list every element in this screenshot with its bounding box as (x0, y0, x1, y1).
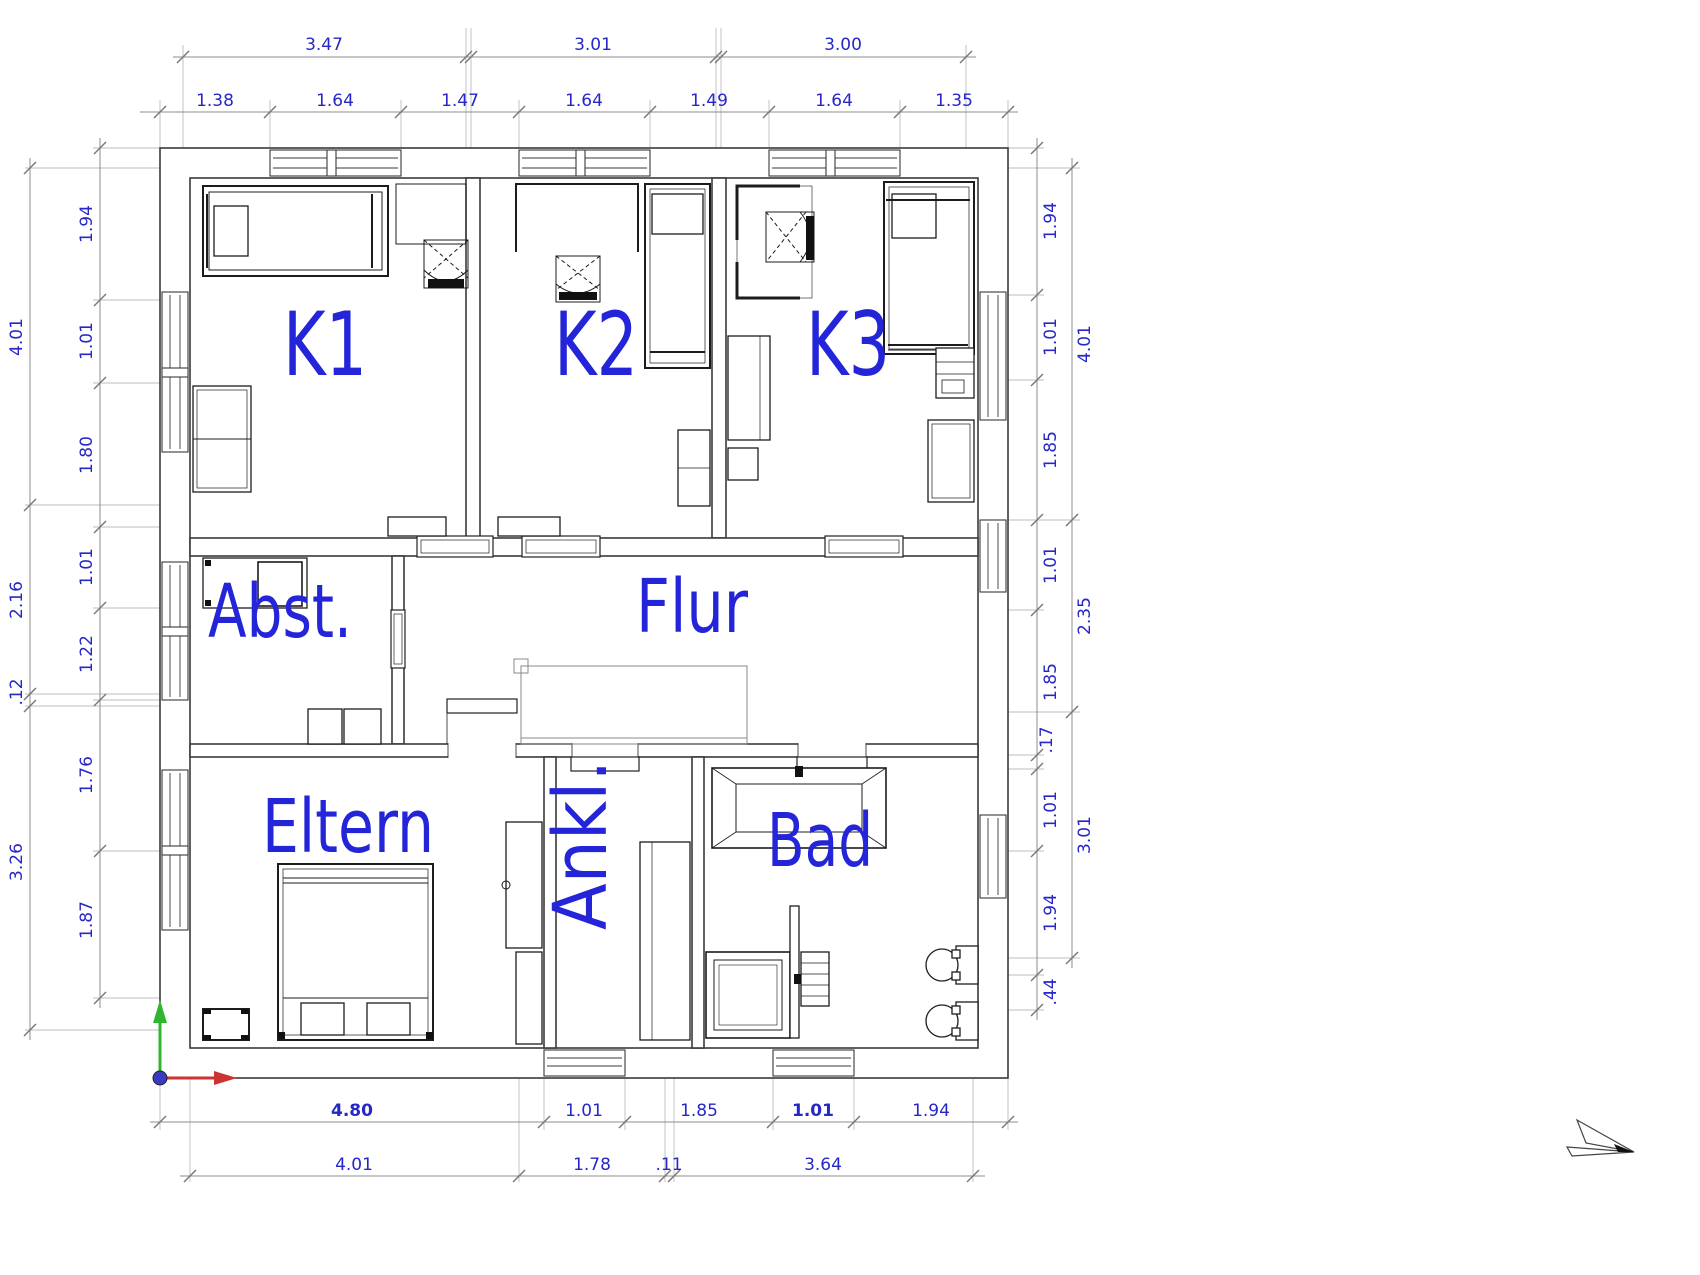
dim-label: .12 (7, 678, 27, 705)
dim-label: 1.01 (77, 322, 97, 360)
door-k3 (825, 536, 903, 557)
dim-label: 1.64 (316, 91, 354, 111)
dim-label: 1.94 (912, 1101, 950, 1121)
dim-label: 3.01 (574, 35, 612, 55)
dim-label: 1.87 (77, 901, 97, 939)
dim-label: 1.64 (815, 91, 853, 111)
room-label-k1: K1 (283, 293, 367, 396)
window-k2-north (519, 150, 650, 176)
room-label-abst: Abst. (208, 569, 352, 655)
k2-bed (645, 184, 710, 368)
wall-k2-k3 (712, 178, 726, 538)
dim-label: 1.01 (792, 1101, 834, 1121)
dim-label: 1.35 (935, 91, 973, 111)
k3-wardrobe (928, 420, 974, 502)
north-arrow-icon (1567, 1120, 1634, 1156)
window-eltern-west (162, 770, 188, 930)
wall-k1-k2 (466, 178, 480, 538)
k3-cabinet (728, 336, 770, 440)
ankl-wardrobe (640, 842, 690, 1040)
window-abst-west (162, 562, 188, 700)
window-bad-east (980, 815, 1006, 898)
dim-label: 1.85 (1041, 431, 1061, 469)
window-k3-north (769, 150, 900, 176)
dim-label: 1.38 (196, 91, 234, 111)
k1-shelf (388, 517, 446, 536)
dim-label: 2.16 (7, 581, 27, 619)
eltern-cabinet (516, 952, 542, 1044)
k1-wardrobe (193, 386, 251, 492)
dim-label: 3.64 (804, 1155, 842, 1175)
dim-label: 1.01 (1041, 791, 1061, 829)
k2-shelf (498, 517, 560, 536)
eltern-wardrobe (502, 822, 542, 948)
dim-label: 2.35 (1075, 597, 1095, 635)
dim-label: 4.01 (7, 318, 27, 356)
dim-label: 1.01 (1041, 546, 1061, 584)
bad-shower (706, 952, 790, 1038)
dim-label: 4.01 (1075, 325, 1095, 363)
door-abst (391, 610, 405, 668)
dim-label: 1.80 (77, 436, 97, 474)
dim-label: 1.47 (441, 91, 479, 111)
room-label-flur: Flur (636, 564, 748, 650)
window-k1-north (270, 150, 401, 176)
k1-bed (203, 186, 388, 276)
k2-desk (516, 184, 638, 252)
dim-label: .11 (655, 1155, 682, 1175)
dim-label: 1.01 (565, 1101, 603, 1121)
door-bad (797, 743, 867, 771)
dim-label: 4.01 (335, 1155, 373, 1175)
dim-label: 4.80 (331, 1101, 373, 1121)
dim-label: .44 (1041, 978, 1061, 1005)
bad-divider-wall (790, 906, 799, 1038)
bathtub-tap-icon (795, 766, 803, 777)
dim-label: 1.49 (690, 91, 728, 111)
floor-plan-canvas: 3.47 3.01 3.00 1.38 1.64 1.47 1.64 1.49 … (0, 0, 1700, 1275)
dim-label: 1.22 (77, 635, 97, 673)
window-flur-east (980, 520, 1006, 592)
window-bad-south (773, 1050, 854, 1076)
dim-label: 1.94 (77, 205, 97, 243)
dim-label: 1.94 (1041, 894, 1061, 932)
dim-label: .17 (1037, 726, 1057, 753)
dim-label: 1.76 (77, 756, 97, 794)
door-k1 (417, 536, 493, 557)
dim-label: 1.85 (1041, 663, 1061, 701)
room-label-k3: K3 (806, 293, 890, 396)
k3-bed (884, 182, 974, 354)
k2-cabinet (678, 430, 710, 506)
door-k2 (522, 536, 600, 557)
abst-boxes (308, 709, 381, 744)
k3-nightstand (936, 348, 974, 398)
room-label-k2: K2 (554, 293, 638, 396)
window-ankl-south (544, 1050, 625, 1076)
bad-sink-1 (926, 946, 978, 984)
wall-ankl-bad (692, 757, 704, 1048)
bad-sink-2 (926, 1002, 978, 1040)
window-k1-west (162, 292, 188, 452)
dim-label: 1.64 (565, 91, 603, 111)
room-label-bad: Bad (767, 798, 873, 884)
dim-label: 1.01 (1041, 318, 1061, 356)
dim-label: 1.94 (1041, 202, 1061, 240)
room-label-eltern: Eltern (262, 784, 434, 870)
room-label-ankl: Ankl. (538, 760, 624, 930)
dim-label: 1.85 (680, 1101, 718, 1121)
dim-label: 3.26 (7, 843, 27, 881)
dim-label: 3.47 (305, 35, 343, 55)
dim-label: 1.01 (77, 548, 97, 586)
k3-side-unit (728, 448, 758, 480)
dim-label: 1.78 (573, 1155, 611, 1175)
origin-point-icon (153, 1071, 167, 1085)
eltern-table (203, 1009, 249, 1040)
dim-label: 3.00 (824, 35, 862, 55)
eltern-bed (278, 864, 433, 1040)
window-k3-east (980, 292, 1006, 420)
dim-label: 3.01 (1075, 816, 1095, 854)
